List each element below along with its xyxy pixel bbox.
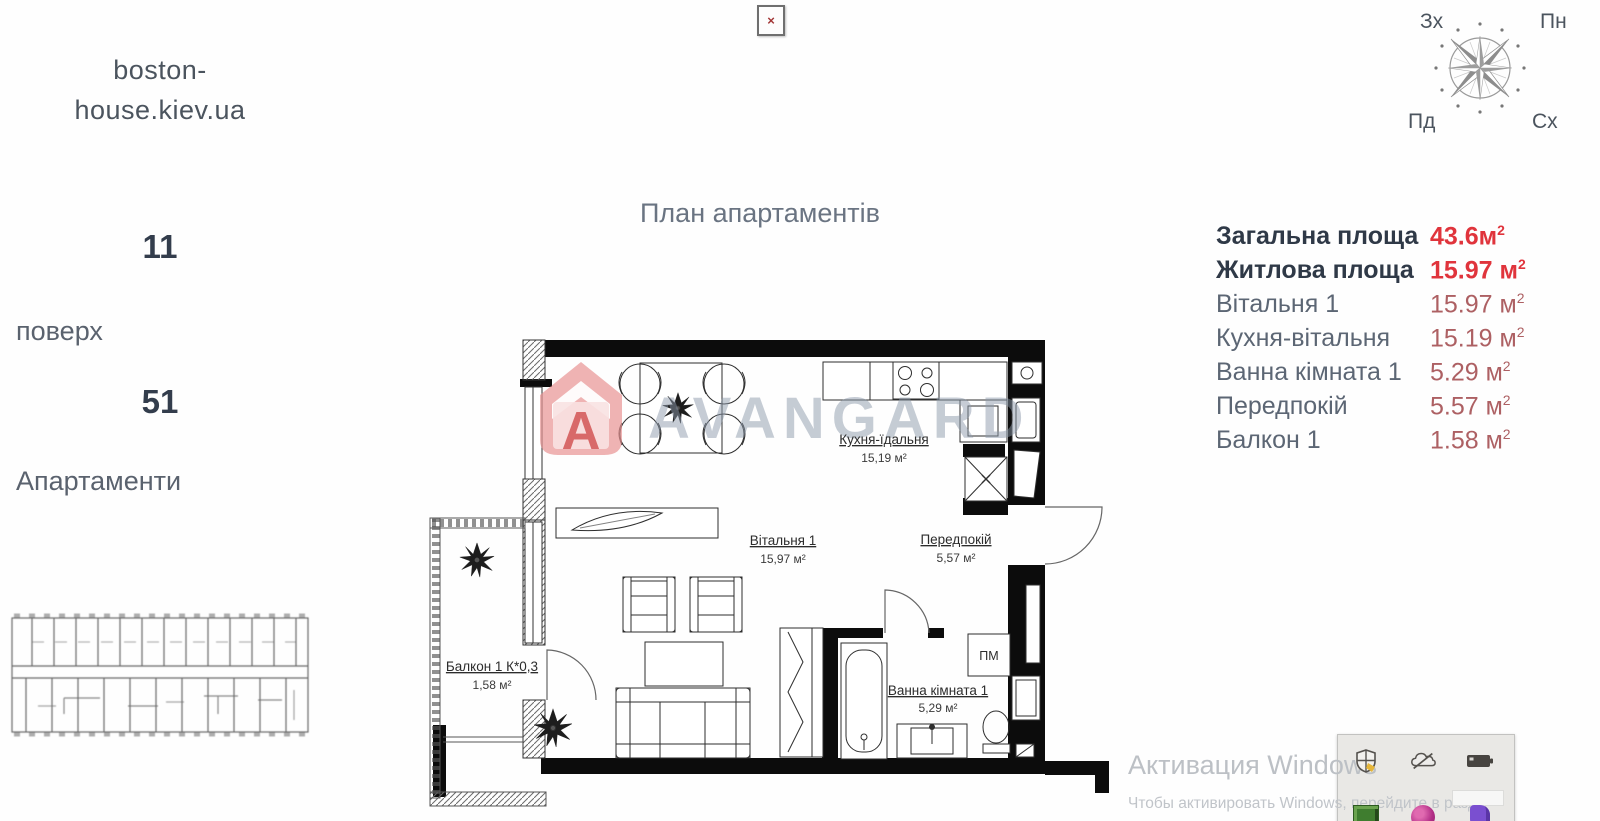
armchair <box>623 577 675 632</box>
brand-shield-logo: A <box>540 362 622 461</box>
table-row: Балкон 11.58 м2 <box>1216 426 1586 460</box>
site-name-line1: boston- <box>20 50 300 90</box>
bathroom-door-arc <box>885 590 929 633</box>
broken-image-x: × <box>767 13 775 28</box>
balcony-door-arc <box>547 650 596 700</box>
site-name: boston- house.kiev.ua <box>20 50 300 130</box>
corner-niche <box>1012 362 1042 384</box>
niche-panel <box>1026 585 1040 663</box>
entrance-door-arc <box>1045 507 1102 564</box>
room-label-pm: ПМ <box>979 649 998 663</box>
site-name-line2: house.kiev.ua <box>20 90 300 130</box>
armchair <box>690 577 742 632</box>
table-row: Ванна кімната 15.29 м2 <box>1216 358 1586 392</box>
tray-icons-row2 <box>1352 803 1523 821</box>
table-row: Вітальня 115.97 м2 <box>1216 290 1586 324</box>
table-row: Передпокій5.57 м2 <box>1216 392 1586 426</box>
floor-number: 11 <box>100 228 220 266</box>
tray-icons-row1 <box>1352 747 1523 775</box>
room-label-bath: Ванна кімната 1 <box>888 683 988 698</box>
room-area-living: 15,97 м² <box>760 552 806 566</box>
app-icon-purple[interactable] <box>1466 803 1494 821</box>
room-label-living: Вітальня 1 <box>750 533 816 548</box>
compass-label-east: Сх <box>1532 110 1558 133</box>
apartment-label: Апартаменти <box>16 466 181 497</box>
table-row: Житлова площа15.97 м2 <box>1216 256 1586 290</box>
table-row: Кухня-вітальня15.19 м2 <box>1216 324 1586 358</box>
room-label-balcony: Балкон 1 К*0,3 <box>446 659 538 674</box>
apartment-number: 51 <box>100 383 220 421</box>
compass-arrows <box>1447 35 1512 100</box>
area-table: Загальна площа43.6м2 Житлова площа15.97 … <box>1216 222 1586 460</box>
floor-label: поверх <box>16 316 103 347</box>
toilet <box>983 711 1010 753</box>
compass-rose: Зх Пн Пд Сх <box>1392 4 1592 136</box>
building-plan-thumbnail <box>8 610 313 740</box>
compass-label-north: Пн <box>1540 10 1567 33</box>
security-shield-icon[interactable] <box>1352 747 1380 775</box>
floor-plan: A AVANGARD Кухня-їдальня 15,19 м² Віталь… <box>420 330 1120 821</box>
coffee-table <box>645 642 723 686</box>
vanity-sink <box>897 724 967 758</box>
balcony-plant <box>460 543 494 577</box>
room-label-kitchen: Кухня-їдальня <box>839 432 928 447</box>
battery-icon[interactable] <box>1466 747 1494 775</box>
windows-activation-title: Активация Windows <box>1128 750 1377 781</box>
console-shelf <box>556 508 718 538</box>
onedrive-cloud-slash-icon[interactable] <box>1409 747 1437 775</box>
app-icon-magenta[interactable] <box>1409 803 1437 821</box>
room-area-balcony: 1,58 м² <box>473 678 512 692</box>
room-area-bath: 5,29 м² <box>919 701 958 715</box>
wardrobe <box>780 628 823 757</box>
room-area-hall: 5,57 м² <box>937 551 976 565</box>
room-area-kitchen: 15,19 м² <box>861 451 907 465</box>
compass-label-south: Пд <box>1408 110 1435 133</box>
room-label-hall: Передпокій <box>920 532 991 547</box>
listing-page: boston- house.kiev.ua × 11 поверх 51 Апа… <box>0 0 1600 821</box>
page-title: План апартаментів <box>560 198 960 229</box>
sofa <box>616 688 750 758</box>
app-icon-green[interactable] <box>1352 803 1380 821</box>
broken-image-icon: × <box>757 5 785 36</box>
brand-letter: A <box>562 401 601 461</box>
table-row: Загальна площа43.6м2 <box>1216 222 1586 256</box>
bathtub <box>841 643 887 759</box>
compass-label-west: Зх <box>1420 10 1444 33</box>
